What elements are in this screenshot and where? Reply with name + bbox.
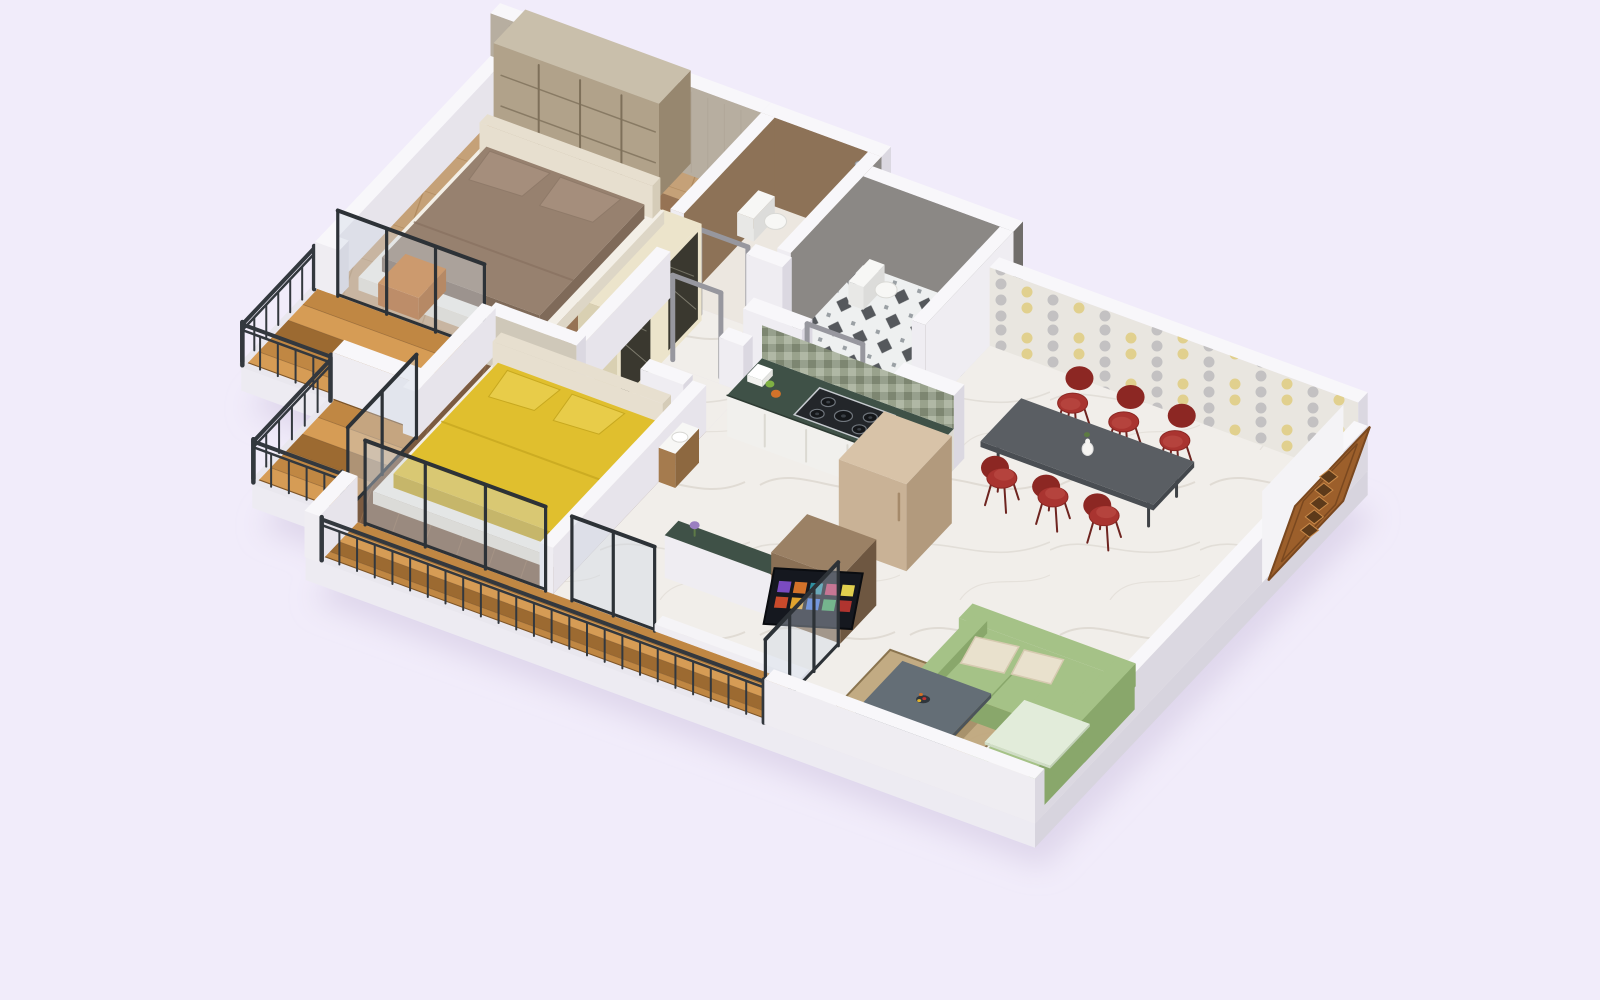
apartment-3d-floorplan-render [0,0,1600,1000]
floorplan-stage [0,0,1600,1000]
